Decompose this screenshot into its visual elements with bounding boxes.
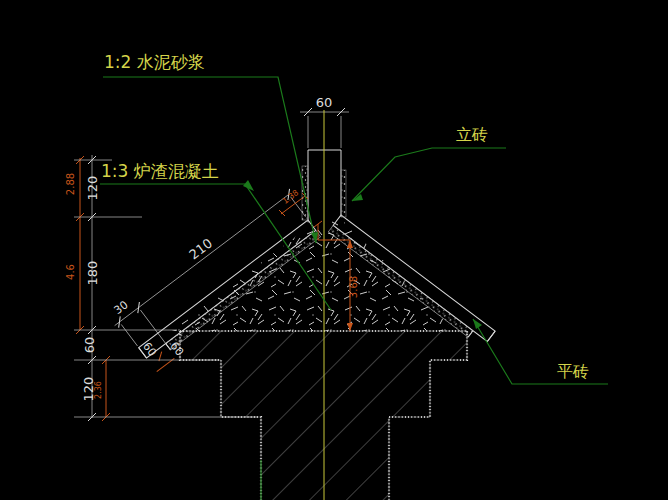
right-eave-end-cap-tile — [487, 331, 495, 341]
dim-red-3: 2.36 — [94, 381, 103, 399]
dim-chain-3: 60 — [82, 337, 97, 354]
label-vertical-brick: 立砖 — [456, 125, 488, 144]
dim-red-1: 2.88 — [65, 173, 76, 195]
dim-red-2: 4.6 — [65, 264, 76, 280]
label-flat-brick: 平砖 — [557, 362, 589, 381]
dim-eave-course-a: 60 — [140, 340, 159, 359]
dim-ridge-width: 60 — [316, 95, 333, 110]
dim-chain-2: 180 — [85, 261, 100, 286]
dim-chain-1: 120 — [85, 176, 100, 201]
label-cinder-concrete: 1:3 炉渣混凝土 — [101, 161, 219, 181]
dim-eave-offset: 30 — [112, 298, 131, 317]
leader-cement-mortar — [103, 77, 316, 243]
leader-vertical-brick — [352, 148, 506, 201]
dim-red-center: 3.68 — [348, 276, 359, 298]
label-cement-mortar: 1:2 水泥砂浆 — [104, 52, 205, 72]
cad-drawing-canvas: 210 30 60 60 60 — [0, 0, 668, 500]
dim-red-ridge: 1.38 — [281, 188, 301, 206]
ridge-mortar-strip-right — [341, 170, 346, 217]
tick-30 — [114, 316, 125, 327]
roof-ridge-detail-svg: 210 30 60 60 60 — [0, 0, 668, 500]
red-ridge-tick-a — [279, 210, 285, 216]
dim-slope-length: 210 — [186, 235, 215, 262]
ext-30-tile — [121, 324, 137, 346]
tick-210-eave — [133, 302, 144, 313]
